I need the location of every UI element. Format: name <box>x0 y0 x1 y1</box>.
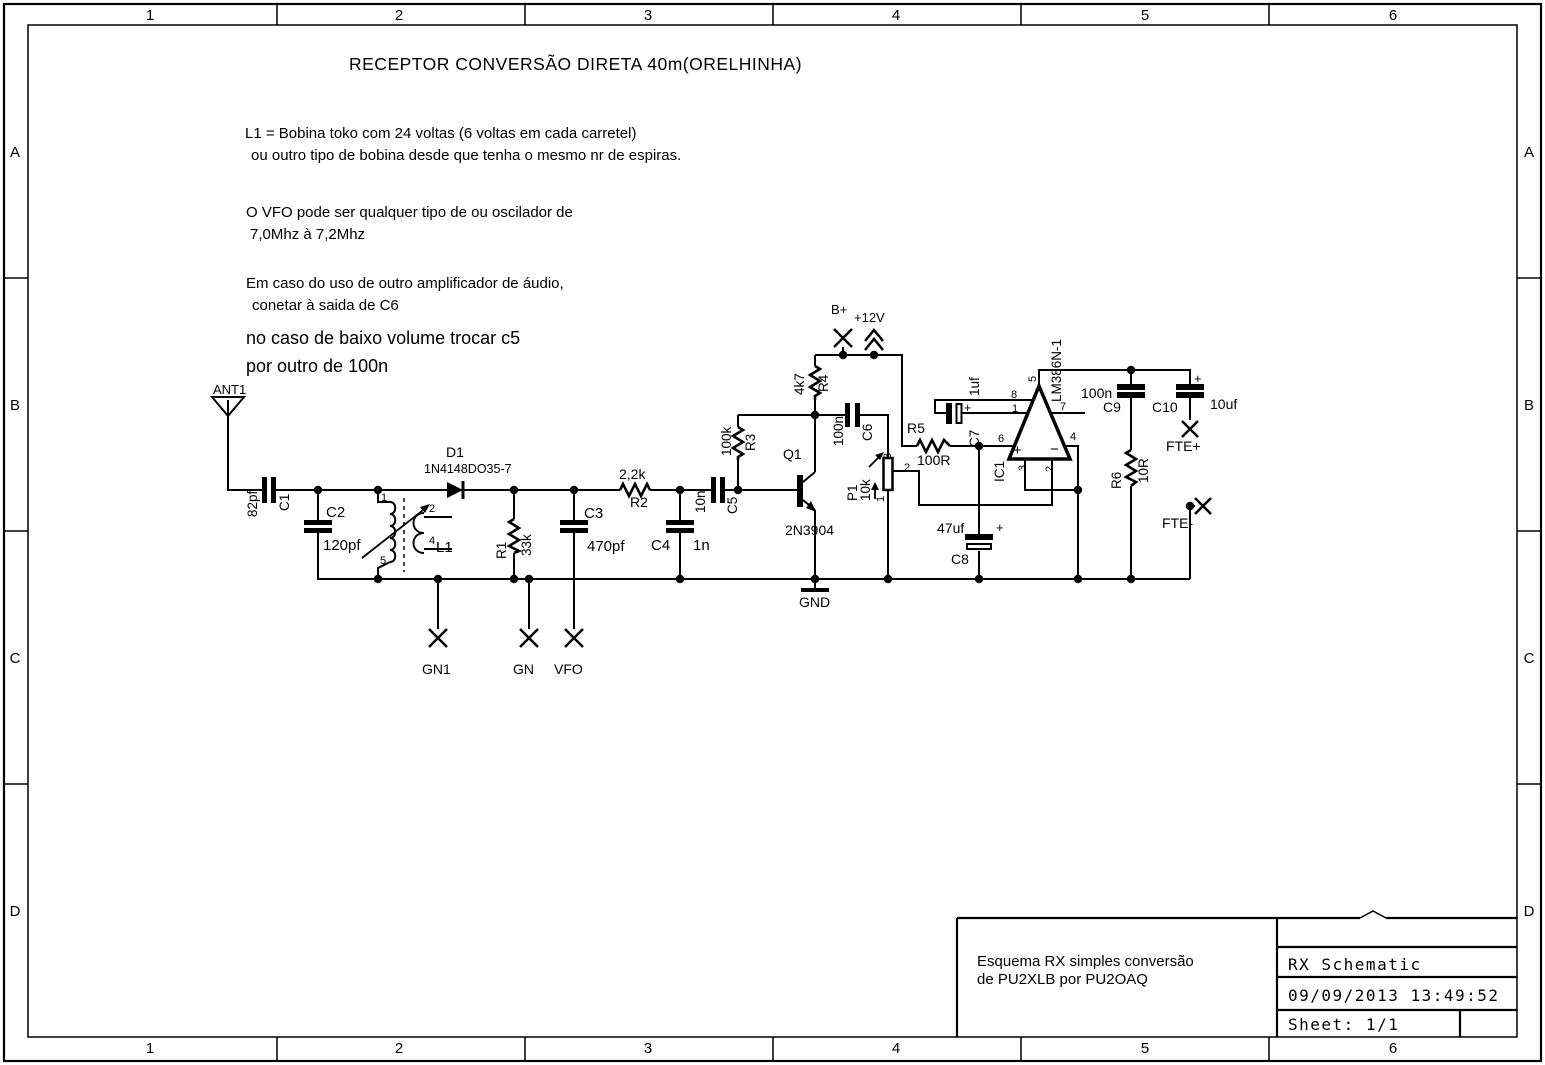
c10-value: 10uf <box>1210 396 1237 412</box>
bplus-label: B+ <box>831 302 847 317</box>
fte-minus-label: FTE- <box>1162 515 1193 531</box>
grid-row-label: A <box>1524 144 1534 161</box>
c8-polarity: + <box>996 520 1004 535</box>
c7-polarity: + <box>964 401 971 415</box>
r6-value: 10R <box>1136 458 1151 483</box>
l1-pin2: 2 <box>429 503 435 515</box>
resistor-r2: 2,2k R2 <box>619 466 650 510</box>
bottom-terminals: GN1 GN VFO <box>422 629 583 677</box>
p1-value: 10k <box>858 479 873 501</box>
note-l1-line1: L1 = Bobina toko com 24 voltas (6 voltas… <box>245 125 636 142</box>
title-block-description-line1: Esquema RX simples conversão <box>977 953 1194 970</box>
q1-collector <box>803 472 815 482</box>
grid-row-label: D <box>10 903 21 920</box>
c1-value: 82pf <box>245 490 260 517</box>
fte-minus-terminal-icon <box>1195 498 1211 514</box>
inductor-l1: 1 5 2 4 L1 <box>362 492 453 572</box>
p1-body <box>884 458 893 490</box>
ic1-pin5: 5 <box>1027 376 1039 382</box>
p1-pin2: 2 <box>904 462 910 474</box>
speaker-terminals: FTE+ FTE- <box>1162 421 1211 531</box>
resistor-r6: R6 10R <box>1109 450 1151 489</box>
l1-ref: L1 <box>436 539 453 556</box>
ic1-pin8: 8 <box>1011 389 1017 401</box>
capacitor-c7: + 1uf C7 <box>946 377 982 447</box>
gn1-terminal-icon <box>429 629 447 647</box>
grid-row-label: D <box>1524 903 1535 920</box>
page-title: RECEPTOR CONVERSÃO DIRETA 40m(ORELHINHA) <box>349 53 802 74</box>
outer-border <box>4 4 1541 1061</box>
column-ticks-top <box>277 4 1269 25</box>
r1-ref: R1 <box>494 542 509 559</box>
ic1-value: LM386N-1 <box>1049 339 1064 402</box>
grid-col-label: 2 <box>395 7 403 24</box>
note-vfo-line1: O VFO pode ser qualquer tipo de ou oscil… <box>246 204 573 221</box>
note-amp-line2: conetar à saida de C6 <box>252 297 399 314</box>
c8-ref: C8 <box>951 551 969 567</box>
c5-ref: C5 <box>725 497 740 514</box>
ant1-ref: ANT1 <box>213 382 246 397</box>
row-ticks-right <box>1517 278 1541 784</box>
c10-polarity: + <box>1194 371 1202 386</box>
title-block-description-line2: de PU2XLB por PU2OAQ <box>977 971 1148 988</box>
c6-ref: C6 <box>860 424 875 441</box>
ic1-pin2: 2 <box>1044 466 1056 472</box>
capacitor-c5: 10n C5 <box>693 477 740 514</box>
ic1-pin1: 1 <box>1012 403 1018 415</box>
grid-col-label: 1 <box>146 7 154 24</box>
title-block-doc-name: RX Schematic <box>1288 955 1422 974</box>
resistor-r4: 4k7 R4 <box>792 366 831 400</box>
fte-plus-label: FTE+ <box>1166 438 1201 454</box>
grid-row-label: A <box>10 144 20 161</box>
schematic-canvas: 1 2 3 4 5 6 1 2 3 4 5 6 A B C D A B C D … <box>0 0 1545 1065</box>
l1-pin5: 5 <box>380 555 386 567</box>
l1-pin4: 4 <box>429 535 435 547</box>
r1-value: 33k <box>519 534 534 556</box>
title-block: Esquema RX simples conversão de PU2XLB p… <box>957 911 1517 1037</box>
c8-neg-plate <box>967 544 991 549</box>
paper-cut-mark <box>1360 911 1386 918</box>
capacitor-c3: C3 470pf <box>560 505 625 555</box>
c6-value: 100n <box>831 416 846 446</box>
ic1-minus-input: − <box>1050 441 1059 458</box>
r5-ref: R5 <box>907 420 925 436</box>
r3-ref: R3 <box>743 434 758 451</box>
grid-row-label: B <box>1524 397 1534 414</box>
grid-row-label: C <box>1524 650 1535 667</box>
r4-value: 4k7 <box>792 373 807 395</box>
capacitor-c9: 100n C9 <box>1081 384 1145 415</box>
resistor-r1: R1 33k <box>494 519 534 559</box>
c8-value: 47uf <box>937 520 964 536</box>
note-l1-line2: ou outro tipo de bobina desde que tenha … <box>251 147 681 164</box>
d1-value: 1N4148DO35-7 <box>424 462 512 476</box>
vfo-terminal-icon <box>565 629 583 647</box>
r4-ref: R4 <box>816 374 831 392</box>
title-block-sheet: Sheet: 1/1 <box>1288 1015 1399 1034</box>
title-block-datetime: 09/09/2013 13:49:52 <box>1288 986 1500 1005</box>
schematic-sheet: 1 2 3 4 5 6 1 2 3 4 5 6 A B C D A B C D … <box>0 0 1545 1065</box>
transistor-q1: Q1 2N3904 <box>783 446 834 538</box>
grid-col-label: 6 <box>1389 7 1397 24</box>
capacitor-c8: 47uf + C8 <box>937 520 1004 567</box>
v12-label: +12V <box>854 310 885 325</box>
v12-arrow-icon <box>865 330 883 350</box>
q1-value: 2N3904 <box>785 522 834 538</box>
gn-terminal-icon <box>520 629 538 647</box>
potentiometer-p1: P1 10k 1 3 2 <box>845 452 910 502</box>
l1-pin1: 1 <box>381 492 387 504</box>
grid-col-label: 1 <box>146 1040 154 1057</box>
c7-value: 1uf <box>967 377 982 396</box>
resistor-r3: 100k R3 <box>719 426 758 460</box>
capacitor-c10: + C10 10uf <box>1152 371 1237 415</box>
inner-border <box>28 25 1517 1037</box>
bplus-terminal-icon <box>834 329 852 347</box>
sheet-frame: 1 2 3 4 5 6 1 2 3 4 5 6 A B C D A B C D <box>4 4 1541 1061</box>
grid-col-label: 3 <box>644 1040 652 1057</box>
grid-col-label: 2 <box>395 1040 403 1057</box>
note-volume-line2: por outro de 100n <box>246 356 388 376</box>
grid-col-label: 4 <box>892 7 900 24</box>
p1-pin1: 1 <box>875 496 887 502</box>
c7-ref: C7 <box>967 430 982 447</box>
opamp-ic1: + − IC1 LM386N-1 8 1 6 7 4 5 3 2 <box>992 339 1076 482</box>
ground-symbol: GND <box>799 590 830 610</box>
row-ticks-left <box>4 278 28 784</box>
notes: L1 = Bobina toko com 24 voltas (6 voltas… <box>245 125 681 376</box>
grid-row-label: C <box>10 650 21 667</box>
l1-secondary-winding <box>414 513 425 553</box>
d1-symbol <box>447 482 463 498</box>
r2-value: 2,2k <box>619 466 646 482</box>
wire-collector-rail <box>738 415 888 472</box>
grid-col-label: 4 <box>892 1040 900 1057</box>
c2-value: 120pf <box>323 537 361 554</box>
c10-ref: C10 <box>1152 399 1178 415</box>
d1-ref: D1 <box>446 444 464 460</box>
grid-row-label: B <box>10 397 20 414</box>
r6-ref: R6 <box>1109 472 1124 489</box>
q1-base-bar <box>797 475 803 507</box>
c4-ref: C4 <box>651 537 670 554</box>
capacitor-c2: C2 120pf <box>304 504 361 554</box>
wire-ground-rail <box>318 486 1195 588</box>
fte-plus-terminal-icon <box>1182 421 1198 437</box>
c2-ref: C2 <box>326 504 345 521</box>
ic1-pin6: 6 <box>998 433 1004 445</box>
c3-ref: C3 <box>584 505 603 522</box>
r5-value: 100R <box>917 452 950 468</box>
ic1-ref: IC1 <box>992 461 1007 482</box>
r3-value: 100k <box>719 426 734 456</box>
p1-pin3: 3 <box>882 453 894 459</box>
c9-ref: C9 <box>1103 399 1121 415</box>
c4-value: 1n <box>693 537 710 554</box>
vfo-label: VFO <box>554 661 583 677</box>
grid-col-label: 3 <box>644 7 652 24</box>
capacitor-c1: 82pf C1 <box>245 477 292 517</box>
resistor-r5: R5 100R <box>907 420 950 468</box>
capacitor-c6: 100n C6 <box>831 403 875 446</box>
ic1-pin3: 3 <box>1017 465 1029 471</box>
c3-value: 470pf <box>587 538 625 555</box>
c5-value: 10n <box>693 490 708 513</box>
power-terminals: B+ +12V <box>831 302 885 350</box>
note-amp-line1: Em caso do uso de outro amplificador de … <box>246 275 564 292</box>
antenna-ant1: ANT1 <box>212 382 246 416</box>
q1-ref: Q1 <box>783 446 802 462</box>
gn1-label: GN1 <box>422 661 451 677</box>
column-ticks-bottom <box>277 1037 1269 1061</box>
gn-label: GN <box>513 661 534 677</box>
grid-col-label: 5 <box>1141 1040 1149 1057</box>
note-volume-line1: no caso de baixo volume trocar c5 <box>246 328 520 348</box>
gnd-label: GND <box>799 594 830 610</box>
ic1-pin4: 4 <box>1070 431 1076 443</box>
c1-ref: C1 <box>277 494 292 511</box>
ic1-pin7: 7 <box>1060 401 1066 413</box>
ic1-plus-input: + <box>1013 442 1022 459</box>
note-vfo-line2: 7,0Mhz à 7,2Mhz <box>250 226 365 243</box>
grid-col-label: 6 <box>1389 1040 1397 1057</box>
grid-col-label: 5 <box>1141 7 1149 24</box>
r2-ref: R2 <box>630 494 648 510</box>
